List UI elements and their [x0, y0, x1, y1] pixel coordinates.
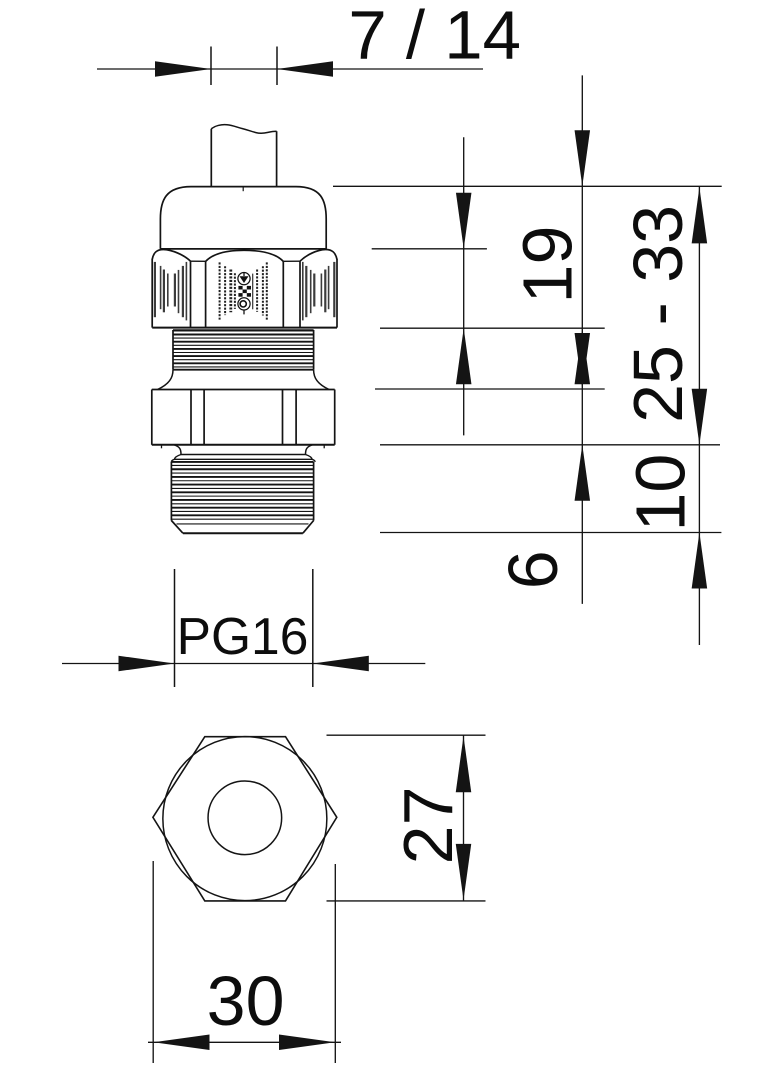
svg-text:27: 27 [389, 786, 467, 864]
svg-text:PG16: PG16 [177, 607, 309, 665]
svg-text:30: 30 [207, 962, 285, 1040]
svg-text:7 / 14: 7 / 14 [348, 0, 521, 74]
svg-text:25 - 33: 25 - 33 [619, 205, 697, 423]
svg-text:10: 10 [622, 454, 700, 532]
svg-text:6: 6 [494, 550, 572, 589]
svg-text:19: 19 [508, 226, 586, 304]
